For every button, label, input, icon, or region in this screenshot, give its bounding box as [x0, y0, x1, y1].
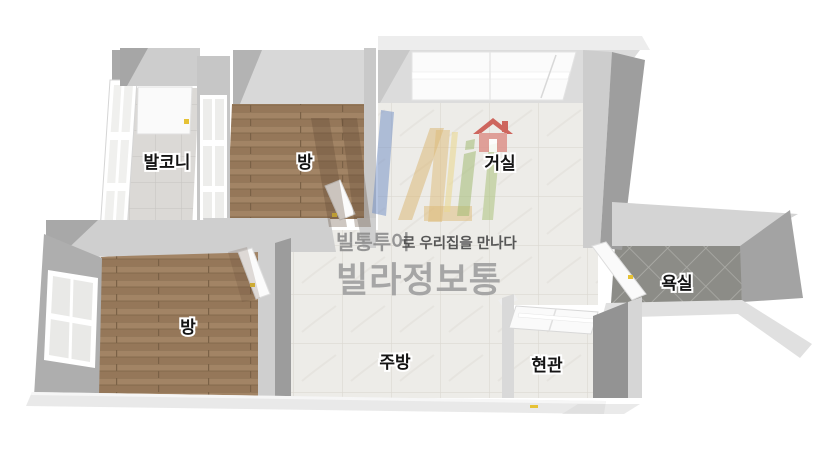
- watermark-tagline: 로 우리집을 만나다: [402, 234, 517, 252]
- front-door-handle: [530, 405, 538, 408]
- living-window: [412, 52, 576, 100]
- label-bedroom-top: 방: [297, 153, 313, 172]
- balcony-door: [137, 87, 192, 134]
- watermark-brand-large: 빌라정보통: [336, 261, 502, 300]
- label-bedroom-bottom: 방: [180, 318, 196, 337]
- watermark-brand-bold: 빌통투어: [336, 231, 410, 254]
- bedroom-bottom-east-wall: [258, 243, 275, 397]
- label-entrance: 현관: [531, 356, 563, 375]
- balcony-bedroom-window-wall: [197, 56, 230, 232]
- kitchen-floor: [286, 296, 512, 398]
- entrance-east-wall-light: [628, 297, 642, 398]
- floorplan-stage: 빌통투어 로 우리집을 만나다 빌라정보통 발코니 방 거실 욕실 방 주방 현…: [0, 0, 840, 472]
- floorplan-svg: 빌통투어 로 우리집을 만나다 빌라정보통 발코니 방 거실 욕실 방 주방 현…: [0, 0, 840, 472]
- label-balcony: 발코니: [144, 153, 191, 172]
- bedroom-bottom-east-wall-side: [275, 238, 291, 397]
- label-living: 거실: [484, 154, 515, 173]
- living-north-wall-top: [378, 36, 650, 50]
- label-kitchen: 주방: [379, 353, 411, 372]
- bedroom-bottom-window: [44, 270, 98, 368]
- balcony-door-handle: [184, 119, 189, 124]
- entrance-west-wall: [502, 294, 514, 398]
- entrance-east-wall: [593, 302, 628, 398]
- bathroom-door-handle: [628, 275, 633, 279]
- label-bathroom: 욕실: [661, 274, 692, 293]
